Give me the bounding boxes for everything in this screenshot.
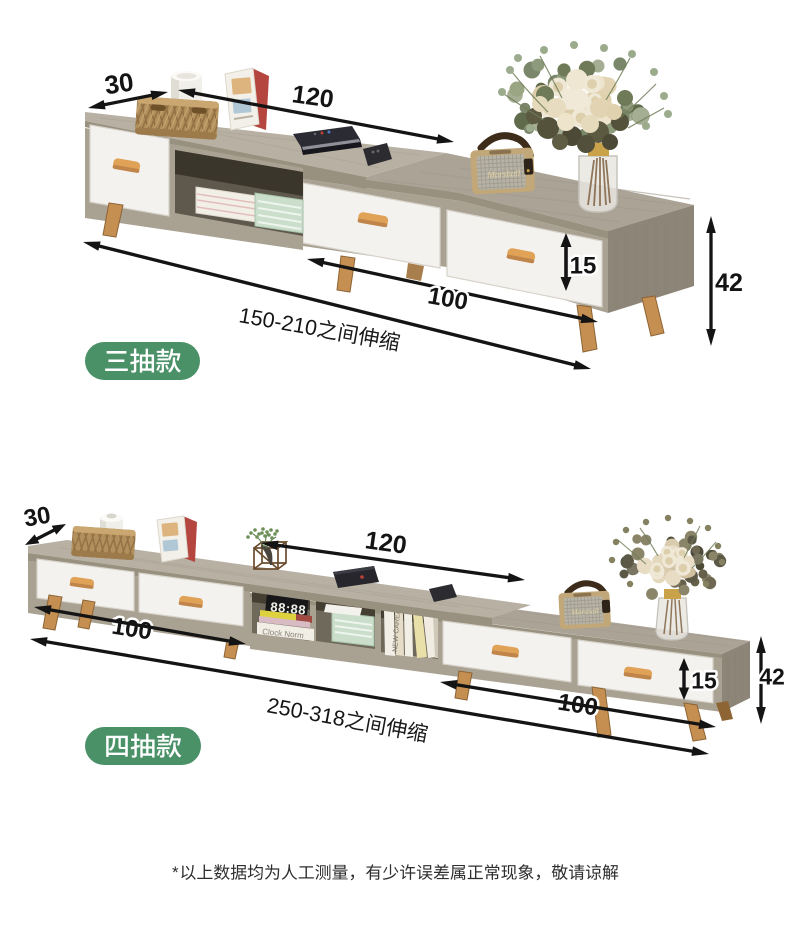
svg-text:Marshall: Marshall bbox=[486, 168, 521, 180]
svg-text:120: 120 bbox=[363, 526, 408, 560]
svg-text:30: 30 bbox=[103, 67, 136, 101]
svg-text:*: * bbox=[172, 863, 179, 882]
svg-text:15: 15 bbox=[691, 667, 717, 693]
svg-text:Marshall: Marshall bbox=[570, 606, 599, 616]
svg-text:30: 30 bbox=[22, 501, 53, 532]
svg-text:15: 15 bbox=[570, 253, 597, 280]
svg-text:120: 120 bbox=[290, 80, 335, 114]
svg-text:42: 42 bbox=[759, 663, 785, 689]
svg-text:42: 42 bbox=[715, 269, 743, 297]
